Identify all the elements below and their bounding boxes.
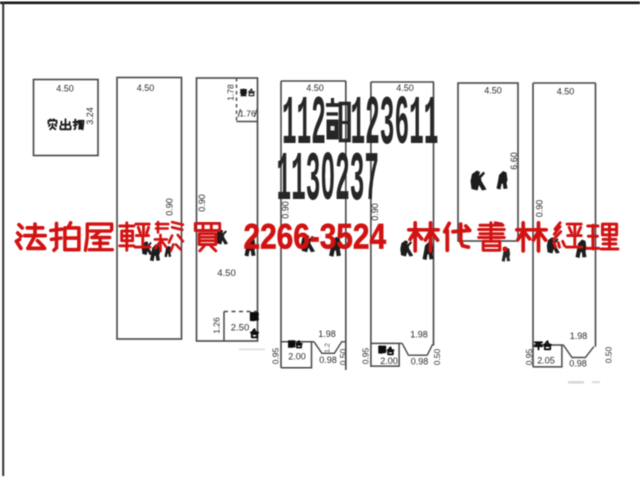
svg-text:4.50: 4.50	[56, 83, 74, 93]
svg-text:1.76: 1.76	[239, 108, 256, 118]
svg-text:0.50: 0.50	[338, 348, 348, 365]
svg-text:0.90: 0.90	[164, 198, 174, 216]
svg-text:0.98: 0.98	[319, 355, 337, 365]
svg-text:0.90: 0.90	[197, 194, 207, 212]
svg-text:0.90: 0.90	[534, 200, 544, 218]
svg-text:0.50: 0.50	[432, 348, 442, 365]
svg-text:2266-3524: 2266-3524	[244, 216, 387, 256]
svg-text:1.78: 1.78	[225, 84, 235, 101]
svg-text:1.98: 1.98	[318, 329, 336, 339]
svg-text:4.50: 4.50	[484, 85, 502, 95]
svg-text:1.2: 1.2	[324, 343, 331, 353]
svg-text:4.50: 4.50	[137, 83, 155, 93]
svg-text:1.98: 1.98	[410, 329, 428, 339]
svg-text:0.95: 0.95	[270, 347, 280, 364]
svg-text:4.50: 4.50	[217, 268, 236, 279]
svg-text:4.50: 4.50	[557, 86, 575, 96]
svg-text:0.95: 0.95	[524, 348, 534, 365]
svg-text:0.98: 0.98	[411, 356, 429, 366]
svg-text:2.00: 2.00	[288, 351, 306, 361]
svg-text:2.00: 2.00	[380, 356, 398, 366]
svg-text:1.26: 1.26	[211, 317, 221, 334]
svg-text:3.24: 3.24	[85, 107, 95, 125]
svg-text:0.98: 0.98	[569, 358, 587, 368]
svg-text:6.60: 6.60	[509, 152, 519, 170]
svg-text:1.98: 1.98	[570, 331, 588, 341]
svg-text:2.05: 2.05	[537, 355, 555, 365]
svg-text:2.50: 2.50	[231, 323, 250, 334]
svg-text:0.95: 0.95	[360, 347, 370, 364]
svg-text:0.50: 0.50	[603, 346, 613, 363]
